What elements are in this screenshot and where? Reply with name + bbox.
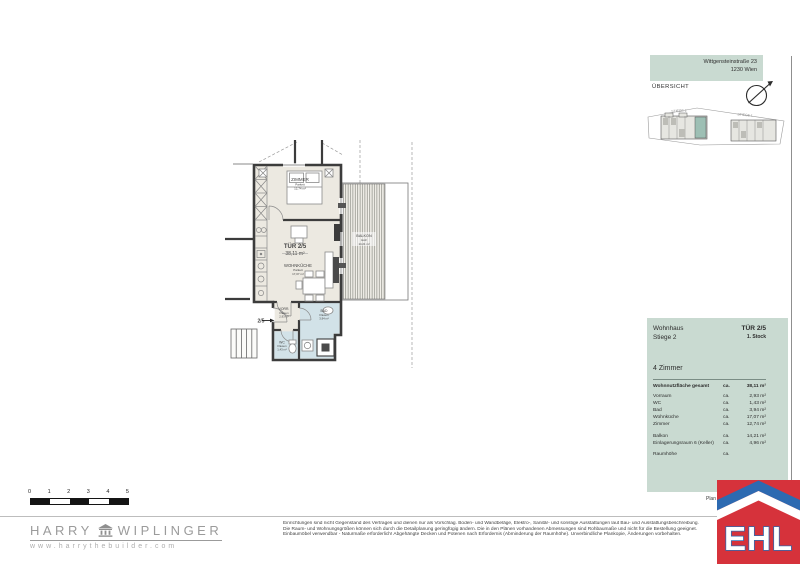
ehl-logo-text: EHL bbox=[724, 520, 793, 557]
plan-document-page: Wittgensteinstraße 23 1230 Wien ÜBERSICH… bbox=[0, 0, 800, 564]
area-table: Wohnnutzfläche gesamt ca. 38,11 m² Vorra… bbox=[653, 379, 766, 458]
harry-wiplinger-logo: HARRY WIPLINGER www.harrythebuilder.com bbox=[30, 523, 222, 550]
vorraum-area-label: 2,93 m² bbox=[279, 314, 289, 318]
unit-label: TÜR 2/5 bbox=[741, 325, 766, 334]
harry-name-right: WIPLINGER bbox=[118, 523, 222, 538]
overview-label: ÜBERSICHT bbox=[652, 84, 689, 90]
table-row-total: Wohnnutzfläche gesamt ca. 38,11 m² bbox=[653, 383, 766, 390]
table-row-raumhoehe: Raumhöhe ca. bbox=[653, 451, 766, 458]
scale-bar-numbers: 0 1 2 3 4 5 bbox=[28, 489, 129, 495]
page-right-rule bbox=[791, 56, 792, 492]
zimmer-area-label: 12,74 m² bbox=[294, 187, 306, 191]
floor-plan: ZIMMER Parkett 12,74 m² TÜR 2/5 38,11 m²… bbox=[225, 140, 425, 370]
balkon-area-label: 14,21 m² bbox=[358, 242, 369, 246]
wc-area-label: 1,43 m² bbox=[277, 348, 287, 352]
shower-drain bbox=[322, 344, 330, 352]
legal-disclaimer: Einrichtungen sind nicht Gegenstand des … bbox=[283, 521, 717, 548]
table-row: Einlagerungsraum 6 (Keller) ca. 4,96 m² bbox=[653, 440, 766, 447]
toilet-tank bbox=[289, 340, 296, 344]
site-building-stiege1 bbox=[731, 120, 776, 141]
site-building-stiege2 bbox=[661, 113, 707, 139]
disclaimer-line: Einrichtungen sind nicht Gegenstand des … bbox=[283, 521, 717, 527]
plan-footer-note: Plan bbox=[656, 496, 716, 502]
washing-machine bbox=[302, 340, 313, 351]
site-plan: STIEGE 2 STIEGE 1 bbox=[645, 104, 790, 148]
table-row: WC ca. 1,43 m² bbox=[653, 400, 766, 407]
toilet bbox=[289, 344, 296, 353]
address-street: Wittgensteinstraße 23 bbox=[650, 59, 757, 67]
stair-label: Stiege 2 bbox=[653, 334, 683, 343]
balcony-threshold-2 bbox=[338, 263, 346, 268]
unit-info-panel: Wohnhaus Stiege 2 TÜR 2/5 1. Stock 4 Zim… bbox=[647, 318, 788, 492]
bad-area-label: 3,94 m² bbox=[319, 316, 329, 320]
ehl-logo: EHL bbox=[717, 480, 800, 564]
desk bbox=[291, 226, 307, 238]
sofa bbox=[333, 257, 339, 283]
unit-door-label: TÜR 2/5 bbox=[284, 243, 307, 250]
table-row: Bad ca. 3,94 m² bbox=[653, 407, 766, 414]
building-label: Wohnhaus bbox=[653, 325, 683, 334]
entrance-label: 2/5 bbox=[258, 319, 265, 325]
sideboard bbox=[325, 252, 333, 288]
unit-area-label: 38,11 m² bbox=[285, 251, 305, 257]
footer-divider bbox=[0, 516, 717, 517]
room-count-label: 4 Zimmer bbox=[653, 365, 766, 372]
balcony-threshold-1 bbox=[338, 203, 346, 208]
scale-bar bbox=[30, 498, 129, 505]
zimmer-label: ZIMMER bbox=[291, 177, 309, 182]
address-city: 1230 Wien bbox=[650, 67, 757, 75]
disclaimer-line: Einbaumöbel verwendbar - Naturmaße erfor… bbox=[283, 532, 717, 538]
harry-name-left: HARRY bbox=[30, 523, 93, 538]
table-row: Zimmer ca. 12,74 m² bbox=[653, 421, 766, 428]
flue-shaft bbox=[334, 224, 341, 241]
floor-label: 1. Stock bbox=[741, 334, 766, 340]
address-box: Wittgensteinstraße 23 1230 Wien bbox=[650, 55, 763, 81]
builder-temple-icon bbox=[98, 524, 113, 537]
table-row: Vorraum ca. 2,93 m² bbox=[653, 393, 766, 400]
wohnkueche-area-label: 17,07 m² bbox=[292, 272, 304, 276]
dining-table bbox=[303, 278, 325, 294]
french-balcony-grille bbox=[231, 329, 257, 358]
table-row: Balkon ca. 14,21 m² bbox=[653, 433, 766, 440]
site-highlighted-unit bbox=[695, 117, 706, 138]
harry-website-url: www.harrythebuilder.com bbox=[30, 543, 222, 550]
site-label-stiege2: STIEGE 2 bbox=[671, 109, 687, 114]
table-row: Wohnküche ca. 17,07 m² bbox=[653, 414, 766, 421]
